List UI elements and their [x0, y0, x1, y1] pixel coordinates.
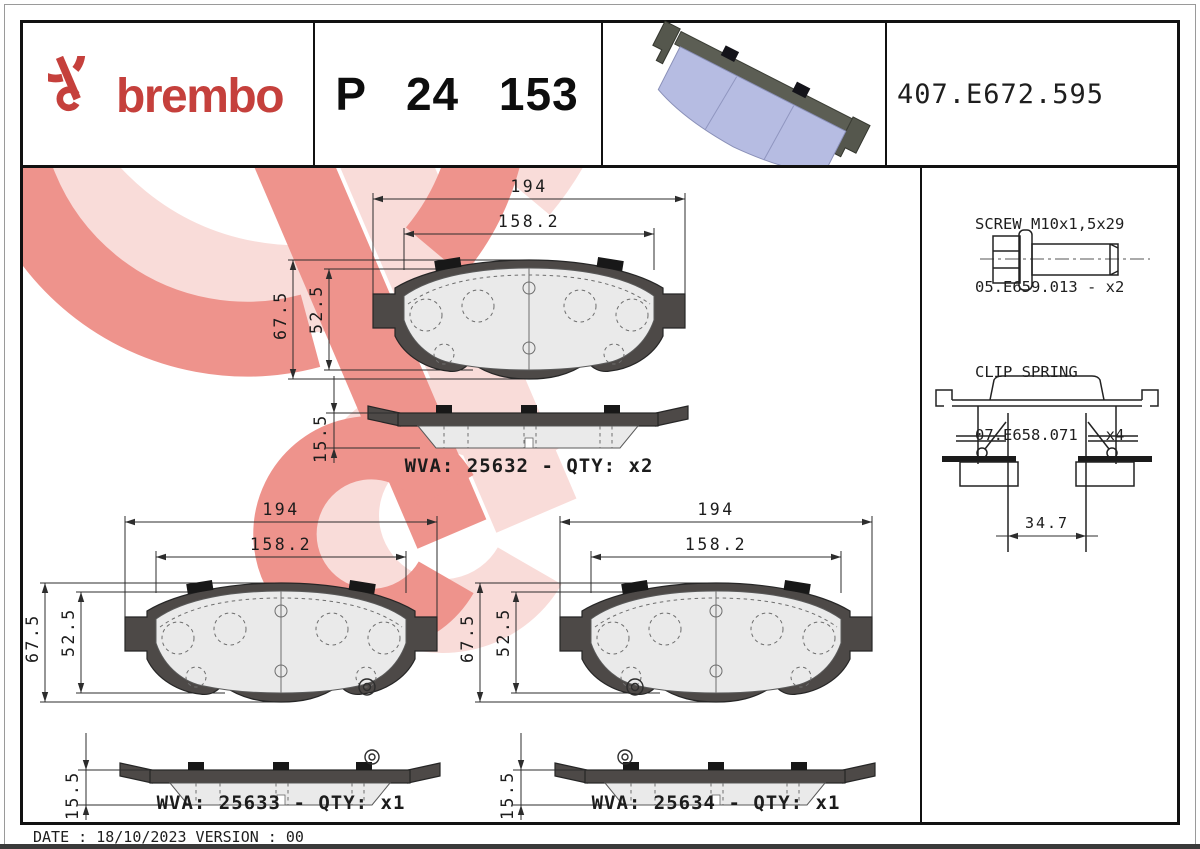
screw-drawing [980, 230, 1150, 290]
pad-side-view: 15.5 [311, 376, 688, 463]
reference-cell: 407.E672.595 [885, 23, 1177, 165]
dim-thickness: 15.5 [63, 770, 82, 820]
brand-wordmark: brembo [116, 70, 283, 123]
dim-friction-height: 52.5 [494, 607, 513, 657]
dim-friction-width: 158.2 [498, 212, 560, 231]
dim-total-height: 67.5 [271, 290, 290, 340]
dim-total-width: 194 [510, 177, 547, 196]
dim-total-width: 194 [262, 500, 299, 519]
wva-label: WVA: 25633 - QTY: x1 [157, 792, 406, 814]
clip-spring-drawing: 34.7 [936, 376, 1158, 552]
dim-friction-height: 52.5 [59, 607, 78, 657]
dim-friction-width: 158.2 [250, 535, 312, 554]
dim-total-width: 194 [697, 500, 734, 519]
brembo-logo-icon: brembo [48, 56, 288, 132]
dim-total-height: 67.5 [458, 613, 477, 663]
column-divider [920, 168, 922, 822]
dim-thickness: 15.5 [311, 413, 330, 463]
photo-cell [601, 11, 885, 171]
part-number-cell: P 24 153 [313, 23, 601, 165]
pad-drawing-25634: 194 158.2 67.5 52.5 [455, 495, 885, 849]
brake-pad-3d-image [601, 11, 885, 171]
part-number: P 24 153 [335, 67, 578, 121]
dim-total-height: 67.5 [23, 613, 42, 663]
dim-friction-height: 52.5 [307, 284, 326, 334]
wva-label: WVA: 25632 - QTY: x2 [405, 455, 654, 477]
dim-clip-width: 34.7 [1025, 514, 1069, 532]
pad-drawing-25633: 194 158.2 67.5 52.5 [20, 495, 450, 849]
dim-thickness: 15.5 [498, 770, 517, 820]
brand-cell: brembo [23, 23, 313, 165]
dim-friction-width: 158.2 [685, 535, 747, 554]
header-box: brembo P 24 153 407.E672.595 [20, 20, 1180, 165]
reference-number: 407.E672.595 [885, 79, 1104, 110]
pad-drawing-25632: 194 158.2 67.5 52.5 [268, 172, 698, 502]
datasheet-page: brembo P 24 153 407.E672.595 [0, 0, 1200, 849]
date-version-line: DATE : 18/10/2023 VERSION : 00 [33, 828, 304, 846]
accessories-drawings: 34.7 [922, 168, 1178, 768]
wva-label: WVA: 25634 - QTY: x1 [592, 792, 841, 814]
